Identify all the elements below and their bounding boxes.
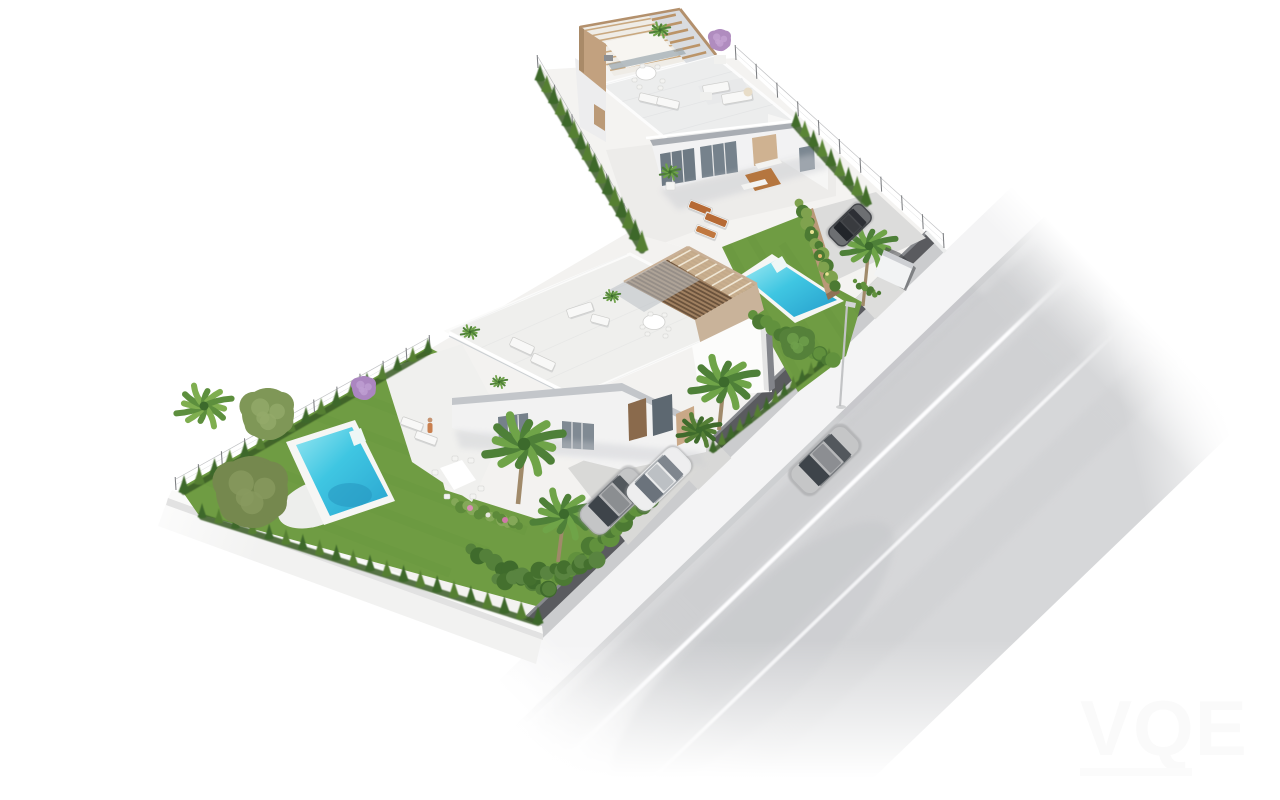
svg-text:VQE: VQE [1080, 684, 1248, 772]
